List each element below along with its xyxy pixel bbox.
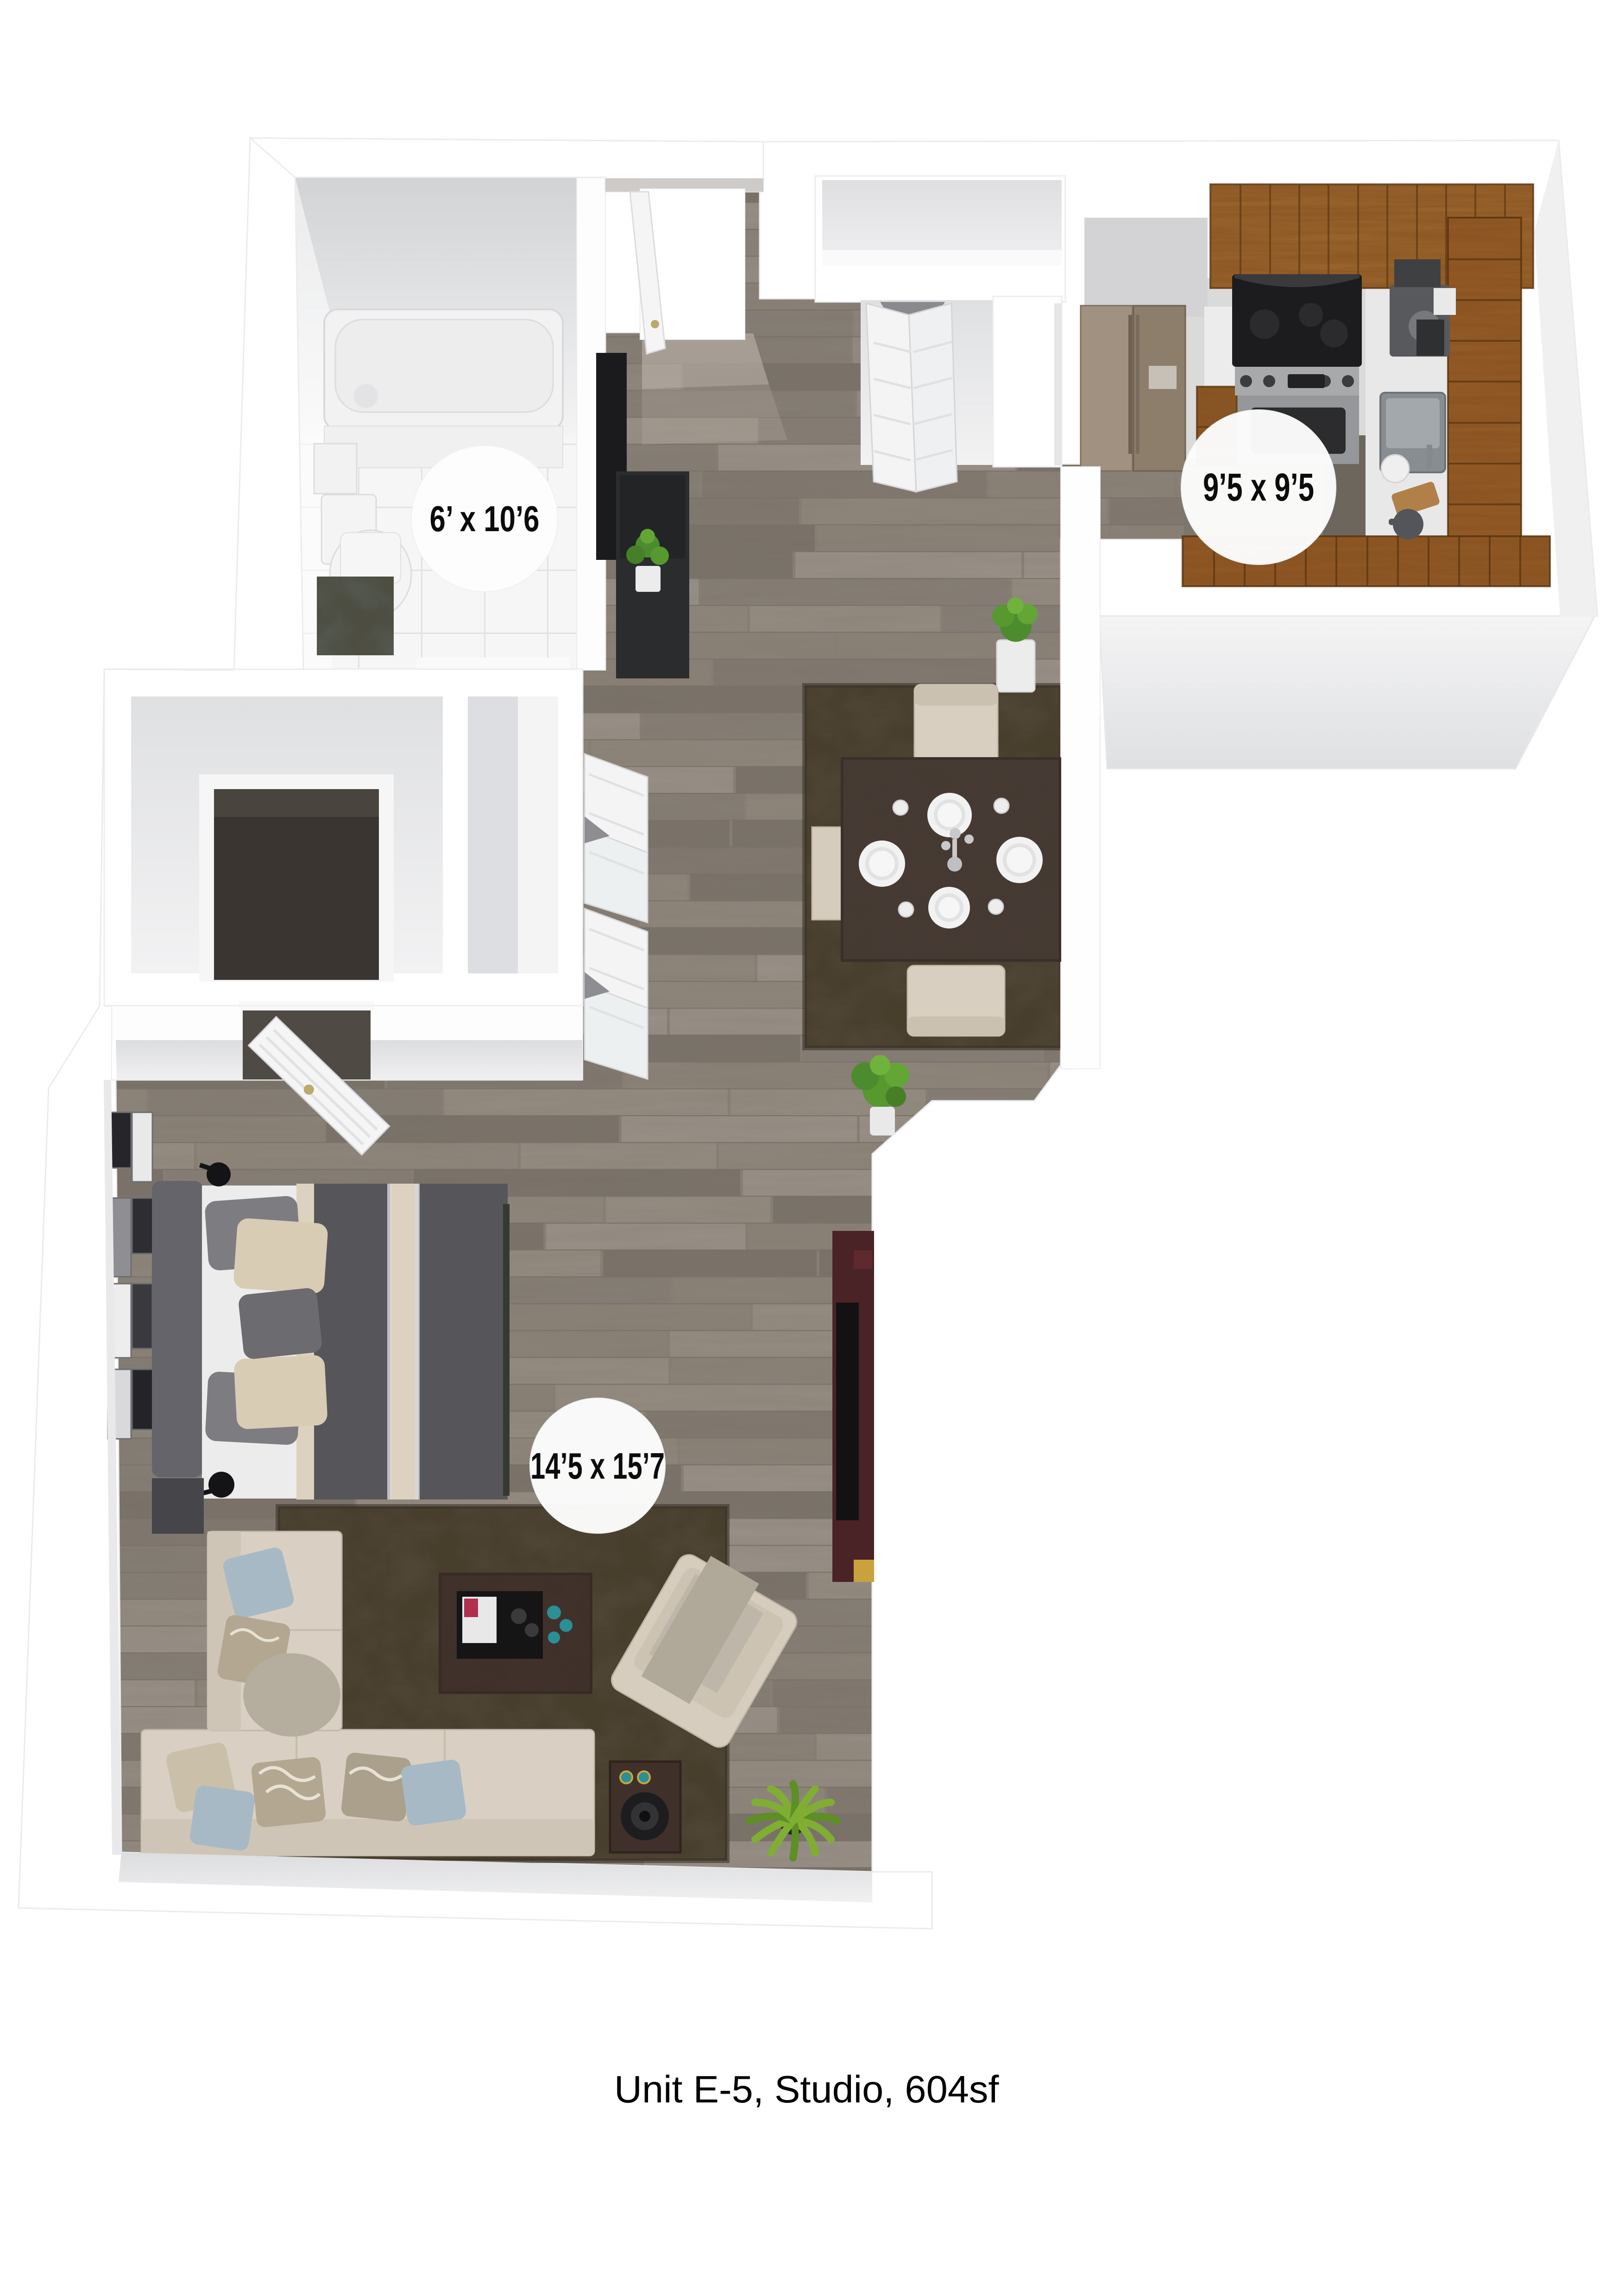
svg-text:14’5 x 15’7: 14’5 x 15’7 [530,1445,665,1487]
svg-text:6’ x 10’6: 6’ x 10’6 [430,498,540,539]
svg-text:9’5 x 9’5: 9’5 x 9’5 [1203,465,1314,509]
svg-text:Unit E-5, Studio, 604sf: Unit E-5, Studio, 604sf [614,2068,999,2111]
